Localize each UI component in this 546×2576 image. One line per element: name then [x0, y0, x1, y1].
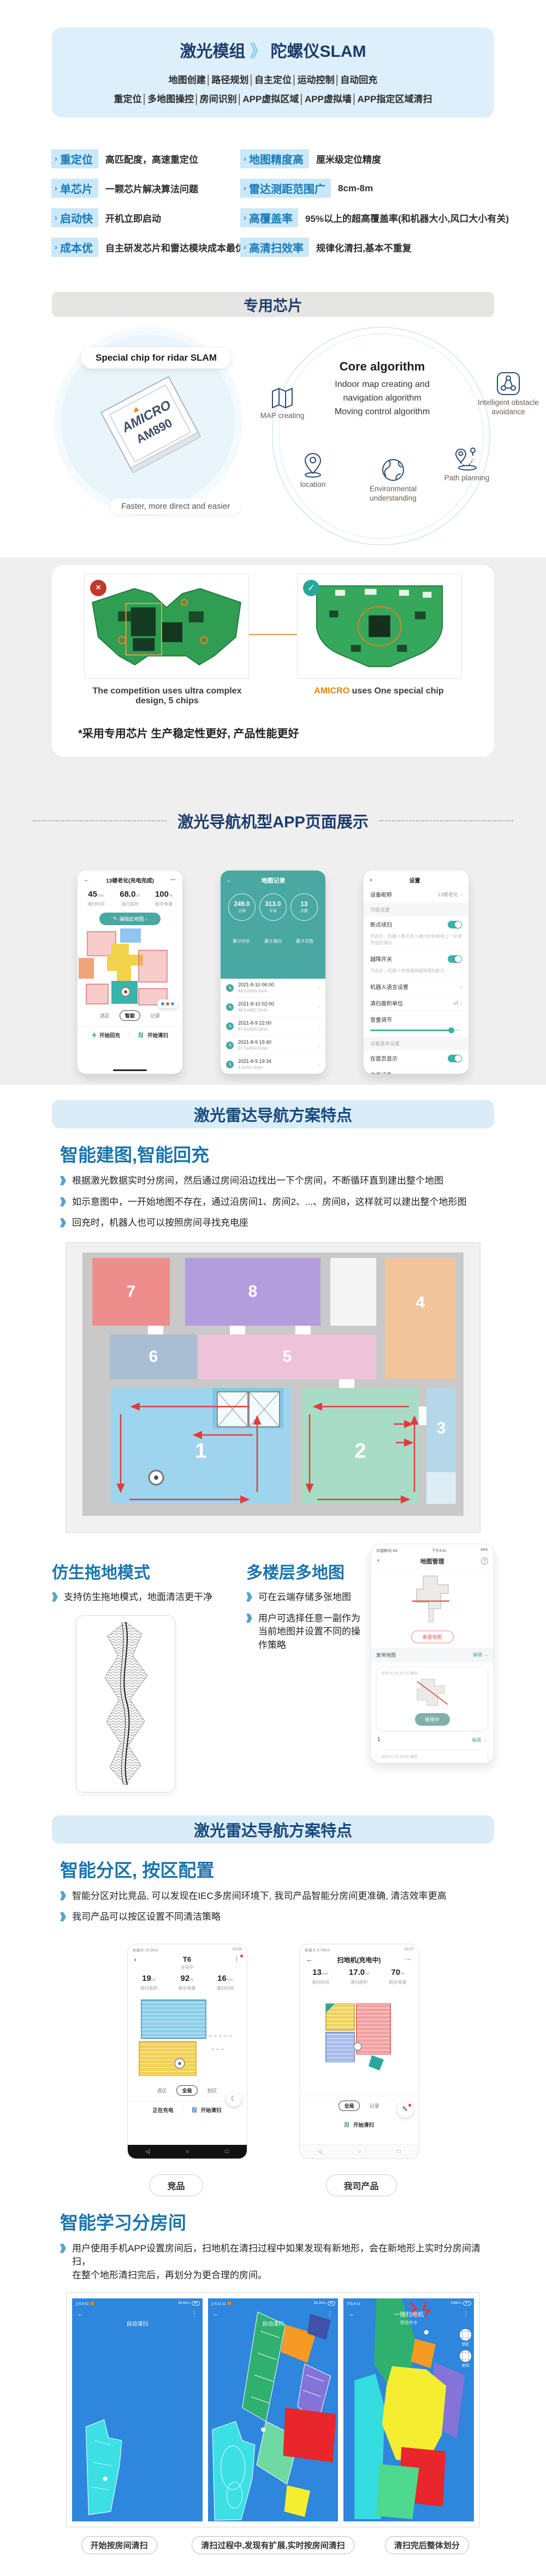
layer-dot-red	[166, 1002, 169, 1005]
stat-label: 剩余电量	[155, 901, 173, 907]
setting-label: 断点续扫	[370, 920, 392, 928]
phone2-total-circles: 249.0 分钟 313.0 平米 13 次数	[226, 893, 320, 921]
back-arrow-icon[interactable]: ←	[226, 877, 232, 884]
clock-icon	[226, 1003, 234, 1011]
battery-icon	[228, 2302, 231, 2305]
amicro-caption: AMICRO uses One special chip	[297, 686, 461, 706]
stat-unit: ㎡	[136, 894, 140, 898]
map-card-2[interactable]: 2020.4.15 16:03 保存	[376, 1750, 488, 1763]
feature-desc: 高匹配度，高速重定位	[105, 152, 198, 166]
status-time: 上午9:52	[75, 2301, 89, 2306]
environment-item: Environmental understanding	[358, 458, 429, 503]
night-mode-button[interactable]: ☾	[227, 2092, 241, 2107]
zoning-bullet1: 智能分区对比竞品, 可以发现在IEC多房间环境下, 我司产品智能分房间更准确, …	[72, 1890, 447, 1903]
hero-feature-line1: 地图创建│路径规划│自主定位│运动控制│自动回充	[169, 72, 378, 86]
current-map-preview	[371, 1569, 494, 1631]
toggle-on[interactable]	[448, 921, 462, 928]
stat-value: 68.0	[120, 890, 135, 899]
feature-badge-label: 单芯片	[60, 180, 93, 196]
competitor-phone: 未插卡 15.2K/s 10:54 ‹ T6 充电中 ⋮ 19㎡ 清扫面积 92…	[127, 1944, 247, 2159]
hero-card: 激光模组》陀螺仪SLAM 地图创建│路径规划│自主定位│运动控制│自动回充 重定…	[52, 27, 494, 117]
start-clean-button[interactable]: 开始清扫	[344, 2121, 374, 2128]
record-row[interactable]: 2021-8-10 02:00 68.0㎡|47.0min ›	[221, 998, 325, 1017]
caption-3: 清扫完后整体划分	[385, 2536, 469, 2554]
edit-map-button[interactable]: ✎ 编辑此地图 ›	[99, 913, 161, 925]
phone2-header: ← 地图记录	[226, 876, 320, 885]
phone3-title: 设置	[372, 876, 458, 884]
record-texts: 2021-8-9 19:34 4.0㎡|1.0min	[238, 1058, 318, 1071]
record-row[interactable]: 2021-8-10 06:00 68.0㎡|45.0min ›	[221, 979, 325, 998]
chevron-right-icon: ›	[244, 243, 246, 252]
screen-header: ← ⋮	[72, 2306, 203, 2318]
map-card-date: 2020.4.15 15:13 保存	[381, 1671, 483, 1676]
nav-home-icon[interactable]: ○	[358, 2149, 361, 2155]
chevron-right-icon: ›	[318, 1004, 320, 1010]
map-icon	[270, 387, 294, 409]
clean-wave-icon	[138, 1032, 145, 1038]
phoneA-title: T6	[128, 1955, 247, 1963]
phone2-total-labels: 累计时长累计清扫累计次数	[226, 938, 320, 944]
edit-link[interactable]: 编辑 →	[472, 1737, 487, 1743]
tab-smart[interactable]: 智能	[120, 1010, 140, 1021]
algo-line3: Moving control algorithm	[306, 405, 459, 419]
action-divider	[129, 1031, 129, 1039]
phoneB-map[interactable]	[300, 1998, 419, 2086]
feature-badge: › 高覆盖率	[240, 208, 298, 227]
map-index-row: 1 编辑 →	[371, 1734, 494, 1746]
stat-unit: min	[322, 1972, 328, 1976]
feature-item: › 启动快 开机立即启动	[51, 208, 237, 227]
chip-caption-pill: Faster, more direct and easier	[110, 498, 241, 514]
chevron-right-icon: ›	[55, 154, 57, 163]
help-icon[interactable]: ?	[481, 1557, 488, 1565]
bullet-text: 回充时，机器人也可以按照房间寻找充电座	[72, 1216, 248, 1230]
start-clean-button[interactable]: 开始清扫	[138, 1031, 168, 1039]
clean-wave-icon	[344, 2121, 351, 2128]
competitor-label: 竞品	[149, 2174, 203, 2196]
cross-icon: ×	[90, 580, 106, 596]
app-showcase-title: 激光导航机型APP页面展示	[177, 809, 369, 832]
feature-badge-label: 雷达测距范围广	[249, 180, 325, 196]
nav-recent-icon[interactable]: □	[225, 2149, 228, 2155]
map-layers-button[interactable]	[157, 999, 178, 1008]
tab-records[interactable]: 记录	[370, 2102, 379, 2109]
feature-item: › 高覆盖率 95%以上的超高覆盖率(和机器大小,风口大小有关)	[240, 208, 509, 227]
feature-badge: › 重定位	[51, 149, 98, 168]
status-left: 未插卡 6.78K/s	[305, 1948, 330, 1953]
clock-label: 下午4:41	[431, 1548, 447, 1554]
tab-zones[interactable]: 划区	[207, 2087, 217, 2094]
stat-value: 45	[88, 890, 97, 899]
stat-value: 16	[217, 1974, 227, 1983]
back-arrow-icon[interactable]: ←	[213, 2310, 219, 2318]
our-product-phone: 未插卡 6.78K/s 10:27 ← 扫地机(充电中) ··· 13min 清…	[299, 1944, 419, 2159]
feature-badge: › 成本优	[51, 238, 98, 257]
page-title: 激光模组》陀螺仪SLAM	[180, 38, 366, 62]
edit-icon: ✎	[113, 916, 117, 922]
layer-dot-blue	[161, 1002, 164, 1005]
more-icon[interactable]: ···	[170, 877, 176, 883]
obstacle-icon	[496, 372, 520, 396]
feature-band-1: 激光雷达导航方案特点	[52, 1100, 494, 1128]
stat-value: 17.0	[349, 1968, 365, 1977]
mapping-heading: 智能建图,智能回充	[60, 1140, 486, 1167]
setting-row-show-home: 在首页显示	[364, 1050, 468, 1067]
phoneB-title: 扫地机(充电中)	[300, 1955, 419, 1965]
phone1-actions: 开始回充 开始清扫	[78, 1026, 182, 1039]
total-label: 累计时长	[233, 938, 250, 944]
competitor-board-box: ×	[84, 574, 249, 679]
mop-bullet-text: 支持仿生拖地模式，地面清洁更干净	[64, 1591, 212, 1604]
algo-line2: navigation algorithm	[306, 392, 459, 405]
more-icon[interactable]: ···	[406, 1955, 412, 1963]
nav-home-icon[interactable]: ○	[186, 2149, 189, 2155]
start-clean-button[interactable]: 开始清扫	[192, 2106, 222, 2114]
tab-select-area[interactable]: 选区	[100, 1012, 110, 1019]
room-tool-label: 房间	[460, 2363, 471, 2368]
map-card-1[interactable]: 2020.4.15 15:13 保存 使用中	[376, 1667, 488, 1731]
record-detail: 68.0㎡|45.0min	[238, 988, 318, 994]
record-texts: 2021-8-10 02:00 68.0㎡|47.0min	[238, 1001, 318, 1013]
tab-select-area[interactable]: 选区	[157, 2087, 167, 2094]
amicro-pcb-image	[306, 579, 453, 673]
back-chevron-icon[interactable]: ‹	[377, 1556, 379, 1564]
screen-title: 一微扫地机	[343, 2310, 474, 2319]
record-row[interactable]: 2021-8-9 19:34 4.0㎡|1.0min ›	[221, 1055, 325, 1074]
feature-desc: 厘米级定位精度	[316, 152, 381, 166]
more-vertical-icon[interactable]: ⋮	[234, 1955, 240, 1963]
status-speed: 58.2K/s	[314, 2301, 326, 2305]
phoneA-subtitle: 充电中	[128, 1965, 247, 1971]
stat-label: 清扫面积	[140, 1985, 158, 1991]
chevron-right-icon: ›	[244, 184, 246, 193]
feature-item: › 地图精度高 厘米级定位精度	[240, 149, 509, 168]
phoneA-stats: 19㎡ 清扫面积 92% 剩余电量 16min 清扫时间	[128, 1971, 247, 1992]
mop-column: 仿生拖地模式 支持仿生拖地模式，地面清洁更干净	[52, 1547, 232, 1792]
record-time: 2021-8-9 22:00	[238, 1020, 318, 1026]
zone-tool-label: 划区	[460, 2342, 471, 2347]
map-edit-button[interactable]: ✎	[397, 2102, 413, 2118]
feature-item: › 成本优 自主研发芯片和雷达模块成本最优	[51, 238, 237, 257]
bullet-marker-icon	[60, 2244, 66, 2253]
back-chevron-icon[interactable]: ‹	[134, 1955, 136, 1963]
clock-icon	[226, 1042, 234, 1049]
toggle-on[interactable]	[448, 1055, 462, 1062]
bullet-marker-icon	[246, 1592, 252, 1602]
setting-row-area-unit[interactable]: 清扫面积单位 ㎡›	[364, 995, 468, 1011]
learning-heading: 智能学习分房间	[60, 2208, 486, 2234]
chip-footnote: *采用专用芯片 生产稳定性更好, 产品性能更好	[78, 725, 494, 740]
compare-labels: 竞品 我司产品	[0, 2174, 546, 2196]
caption-1: 开始按房间清扫	[81, 2536, 157, 2554]
feature-item: › 雷达测距范围广 8cm-8m	[240, 179, 509, 198]
location-icon-label: location	[300, 480, 326, 489]
in-use-button[interactable]: 使用中	[415, 1713, 450, 1726]
map-thumbnail	[405, 1762, 460, 1763]
tab-global[interactable]: 全局	[176, 2085, 197, 2096]
mapping-bullets: 根据激光数据实时分房间，然后通过房间沿边找出一下个房间，不断循环直到建出整个地图…	[60, 1174, 486, 1230]
hero-title-right: 陀螺仪SLAM	[271, 43, 366, 61]
learning-screen-3: 下午4:01 106K/s47 ← ⋮ 一微扫地机 等待命令 划区 房间	[343, 2298, 474, 2521]
stat-label: 清扫时间	[87, 901, 105, 907]
total-value: 13	[301, 901, 308, 908]
feature-band-title: 激光雷达导航方案特点	[194, 1818, 352, 1841]
map-image-1	[72, 2298, 203, 2521]
our-product-label: 我司产品	[326, 2174, 397, 2196]
status-right: 10:27	[404, 1948, 414, 1953]
setting-label: 机器人语言设置	[370, 983, 408, 991]
phone1-map[interactable]	[78, 927, 182, 1008]
feature-badge-label: 启动快	[60, 210, 93, 226]
feature-desc: 一颗芯片解决算法问题	[105, 181, 198, 195]
record-time: 2021-8-9 19:34	[238, 1058, 318, 1064]
competitor-pcb-image	[87, 579, 246, 673]
app-phones-row: ← 13楼老化(充电完成) ··· 45min 清扫时间 68.0㎡ 清扫面积	[0, 871, 546, 1078]
status-bar: 下午4:01 106K/s47	[343, 2298, 474, 2306]
dotted-line-right	[379, 820, 513, 821]
feature-band-title: 激光雷达导航方案特点	[194, 1103, 352, 1126]
phone1-stats: 45min 清扫时间 68.0㎡ 清扫面积 100% 剩余电量	[78, 886, 182, 908]
multimap-bullet1: 可在云端存储多张地图	[258, 1591, 351, 1604]
stat-unit: %	[401, 1972, 404, 1976]
nav-back-icon[interactable]: ◁	[318, 2149, 322, 2155]
setting-label: 音量调节	[370, 1015, 392, 1024]
stat-value: 70	[391, 1968, 400, 1977]
start-clean-label: 开始清扫	[353, 2121, 374, 2128]
total-label: 累计次数	[296, 938, 313, 944]
record-texts: 2021-8-9 19:40 67.0㎡|54.0min	[238, 1039, 318, 1051]
start-clean-label: 开始清扫	[201, 2106, 222, 2114]
record-row[interactable]: 2021-8-9 19:40 67.0㎡|54.0min ›	[221, 1036, 325, 1055]
status-speed: 36.6K/s	[178, 2301, 190, 2305]
stat-value: 13	[312, 1968, 322, 1977]
bullet-marker-icon	[60, 1176, 66, 1185]
android-navbar: ◁ ○ □	[128, 2145, 247, 2159]
screen-title: 自动清扫	[72, 2319, 203, 2327]
setting-row-resume-clean: 断点续扫	[364, 916, 468, 932]
chevron-right-icon: ›	[55, 184, 57, 193]
setting-row-language[interactable]: 机器人语言设置 ›	[364, 979, 468, 995]
feature-desc: 自主研发芯片和雷达模块成本最优	[105, 240, 245, 254]
chevron-right-icon: ›	[244, 213, 246, 222]
section-title-bar: 专用芯片	[52, 292, 494, 317]
learning-paragraph: 用户使用手机APP设置房间后，扫地机在清扫过程中如果发现有新地形，会在新地形上实…	[60, 2242, 486, 2283]
setting-label: 越障开关	[370, 955, 392, 963]
reuse-label: 复用地图	[376, 1651, 396, 1658]
chevron-right-icon: ›	[460, 984, 462, 990]
recharge-button[interactable]: 开始回充	[92, 1031, 120, 1039]
floorplan-figure: 7 8 4 6 5 1 2 3	[66, 1242, 480, 1533]
map-image-2	[208, 2298, 339, 2521]
phoneB-actions: 开始清扫	[300, 2116, 419, 2128]
globe-icon	[381, 458, 405, 482]
total-unit: 平米	[269, 908, 277, 914]
battery-percent: 64	[192, 2301, 200, 2306]
record-detail: 67.0㎡|46.0min	[238, 1026, 318, 1032]
section-label-basic: 设备基本设置	[364, 1037, 468, 1050]
multimap-bullet2: 用户可选择任意一副作为当前地图并设置不同的操作策略	[258, 1612, 369, 1652]
tab-global[interactable]: 全局	[339, 2101, 359, 2111]
clock-icon	[226, 1022, 234, 1030]
feature-item: › 单芯片 一颗芯片解决算法问题	[51, 179, 237, 198]
learning-captions: 开始按房间清扫 清扫过程中,发现有扩展,实时按房间清扫 清扫完后整体划分	[46, 2536, 500, 2554]
obstacle-icon-label: Intelligent obstacle avoidance	[478, 398, 539, 416]
feature-desc: 95%以上的超高覆盖率(和机器大小,风口大小有关)	[305, 211, 509, 225]
tab-records[interactable]: 记录	[150, 1012, 160, 1019]
hero-title-left: 激光模组	[180, 43, 246, 61]
stat-item: 92% 剩余电量	[179, 1974, 196, 1991]
board-compare-card: × ✓	[52, 565, 494, 757]
path-planning-item: Path planning	[437, 447, 497, 483]
status-bar: 上午9:52 36.6K/s64	[72, 2298, 203, 2306]
app-phone-records: ← 地图记录 249.0 分钟 313.0 平米	[221, 871, 325, 1074]
mop-zigzag-image	[85, 1622, 167, 1786]
record-time: 2021-8-10 02:00	[238, 1001, 318, 1007]
chevron-right-icon: ›	[318, 985, 320, 991]
app-phone-settings: ‹ 设置 设备昵称 13楼老化› 功能设置 断点续扫 开启后，机器人再次进入清扫…	[364, 871, 468, 1074]
location-icon	[303, 452, 323, 478]
chevron-right-icon: ›	[318, 1024, 320, 1030]
bullet: 根据激光数据实时分房间，然后通过房间沿边找出一下个房间，不断循环直到建出整个地图	[60, 1174, 486, 1188]
record-detail: 67.0㎡|54.0min	[238, 1045, 318, 1051]
edit-link[interactable]: 编辑 →	[473, 1651, 488, 1658]
more-vertical-icon[interactable]: ⋮	[191, 2310, 198, 2318]
total-value: 313.0	[265, 901, 281, 908]
stat-label: 清扫时间	[217, 1985, 234, 1991]
reuse-map-row: 复用地图 编辑 →	[371, 1648, 494, 1662]
chevron-right-icon: ›	[55, 243, 57, 252]
feature-item: › 重定位 高匹配度，高速重定位	[51, 149, 237, 168]
feature-desc: 8cm-8m	[338, 183, 373, 194]
stat-unit: %	[169, 894, 173, 898]
more-vertical-icon[interactable]: ⋮	[327, 2310, 333, 2318]
setting-label: 清扫面积单位	[370, 999, 403, 1007]
stat-item: 19㎡ 清扫面积	[140, 1974, 158, 1991]
back-arrow-icon[interactable]: ←	[306, 1955, 313, 1963]
total-circle: 13 次数	[290, 893, 318, 921]
chevron-right-icon: ›	[318, 1043, 320, 1049]
bullet-marker-icon	[52, 1592, 58, 1602]
amicro-board-box: ✓	[297, 574, 462, 679]
check-icon: ✓	[303, 580, 319, 596]
nav-back-icon[interactable]: ◁	[146, 2149, 150, 2155]
feature-badge: › 雷达测距范围广	[240, 179, 331, 198]
map-creating-item: MAP creating	[252, 387, 312, 421]
feature-band-2: 激光雷达导航方案特点	[52, 1815, 494, 1844]
learning-screen-2: 上午11:11 58.2K/s82 ← ⋮ 自动清扫	[208, 2298, 339, 2521]
feature-badge-label: 成本优	[60, 239, 93, 255]
phone1-tabs: 选区 智能 记录	[78, 1010, 182, 1021]
volume-slider[interactable]	[370, 1030, 462, 1031]
clock-icon	[226, 1061, 234, 1068]
home-indicator	[113, 1069, 147, 1071]
record-row[interactable]: 2021-8-9 22:00 67.0㎡|46.0min ›	[221, 1017, 325, 1036]
stat-item: 13min 清扫时间	[312, 1968, 329, 1985]
carrier-label: 中国移动 4G	[376, 1548, 397, 1554]
toggle-on[interactable]	[448, 955, 462, 963]
stat-item: 70% 剩余电量	[389, 1968, 406, 1985]
gray-section: × ✓	[0, 557, 546, 1085]
map-tools: 划区 房间	[460, 2329, 471, 2368]
total-label: 累计清扫	[264, 938, 282, 944]
phoneA-map[interactable]	[128, 1997, 247, 2080]
record-time: 2021-8-9 19:40	[238, 1039, 318, 1045]
stat-label: 清扫面积	[349, 1979, 369, 1985]
total-circle: 249.0 分钟	[228, 893, 256, 921]
android-navbar: ◁ ○ □	[300, 2144, 419, 2159]
clock-icon	[226, 984, 234, 992]
phone2-record-list: 2021-8-10 06:00 68.0㎡|45.0min › 2021-8-1…	[221, 979, 325, 1074]
setting-row-share[interactable]: 共享设备 ›	[364, 1067, 468, 1074]
stat-unit: %	[190, 1978, 193, 1982]
setting-row-device-name[interactable]: 设备昵称 13楼老化›	[364, 886, 468, 903]
phone1-header: ← 13楼老化(充电完成) ···	[78, 871, 182, 886]
feature-badge-label: 高清扫效率	[249, 239, 304, 255]
feature-badge: › 地图精度高	[240, 149, 309, 168]
battery-label: 44%	[480, 1548, 488, 1554]
obstacle-avoidance-item: Intelligent obstacle avoidance	[476, 372, 541, 417]
zoning-bullet2: 我司产品可以按区设置不同清洁策略	[72, 1910, 221, 1924]
bullet-marker-icon	[60, 1912, 66, 1921]
clean-path-arrows	[66, 1243, 480, 1532]
back-arrow-icon[interactable]: ←	[84, 877, 90, 883]
map-card-date: 2020.4.15 16:03 保存	[381, 1754, 483, 1760]
setting-desc: 开启后，机器人再次进入清扫时会继续上一次未完成的清扫	[364, 932, 468, 951]
chip-label-pill: Special chip for ridar SLAM	[81, 347, 232, 369]
reset-map-button[interactable]: 重置地图	[411, 1631, 454, 1643]
double-chevron-icon: 》	[250, 43, 266, 61]
phone2-teal-header: ← 地图记录 249.0 分钟 313.0 平米	[221, 871, 325, 979]
zone-tool-icon[interactable]	[460, 2329, 471, 2340]
stat-item: 100% 剩余电量	[155, 890, 173, 907]
setting-row-obstacle: 越障开关	[364, 951, 468, 967]
status-right: 10:54	[232, 1948, 242, 1953]
feature-badge: › 单芯片	[51, 179, 98, 198]
app-showcase-title-row: 激光导航机型APP页面展示	[33, 809, 513, 832]
room-tool-icon[interactable]	[460, 2350, 471, 2362]
feature-desc: 规律化清扫,基本不重复	[316, 240, 412, 254]
phone1-title: 13楼老化(充电完成)	[90, 876, 170, 884]
nav-recent-icon[interactable]: □	[397, 2149, 400, 2155]
screen-subtitle: 等待命令	[343, 2320, 474, 2326]
globe-icon-label: Environmental understanding	[370, 485, 417, 502]
feature-desc: 开机立即启动	[105, 211, 161, 225]
status-bar: 中国移动 4G 下午4:41 44%	[371, 1544, 494, 1555]
charge-icon	[92, 1032, 97, 1038]
bullet-text: 根据激光数据实时分房间，然后通过房间沿边找出一下个房间，不断循环直到建出整个地图	[72, 1174, 443, 1188]
slider-knob[interactable]	[448, 1027, 454, 1033]
multimap-phone: 中国移动 4G 下午4:41 44% ‹ 地图管理 ? 重置地图 复用地图 编辑…	[370, 1544, 494, 1763]
start-clean-label: 开始清扫	[147, 1031, 168, 1039]
total-value: 249.0	[234, 901, 250, 908]
map-image-3	[343, 2298, 474, 2521]
phoneA-header: ‹ T6 充电中 ⋮	[128, 1953, 247, 1971]
clean-wave-icon	[192, 2107, 198, 2113]
status-bar: 上午11:11 58.2K/s82	[208, 2298, 339, 2306]
chevron-right-icon: ›	[460, 1072, 462, 1074]
location-item: location	[288, 452, 337, 490]
back-arrow-icon[interactable]: ←	[77, 2310, 84, 2318]
notice-dot	[408, 2104, 411, 2107]
charging-status: 正在充电	[152, 2106, 173, 2114]
status-time: 上午11:11	[211, 2301, 226, 2306]
notice-dot	[240, 1955, 243, 1957]
stat-item: 68.0㎡ 清扫面积	[120, 890, 140, 907]
amicro-brand: AMICRO	[314, 686, 349, 696]
edit-map-label: 编辑此地图 ›	[120, 915, 147, 922]
map-manage-header: ‹ 地图管理 ?	[371, 1555, 494, 1569]
status-bar: 未插卡 6.78K/s 10:27	[300, 1944, 419, 1953]
